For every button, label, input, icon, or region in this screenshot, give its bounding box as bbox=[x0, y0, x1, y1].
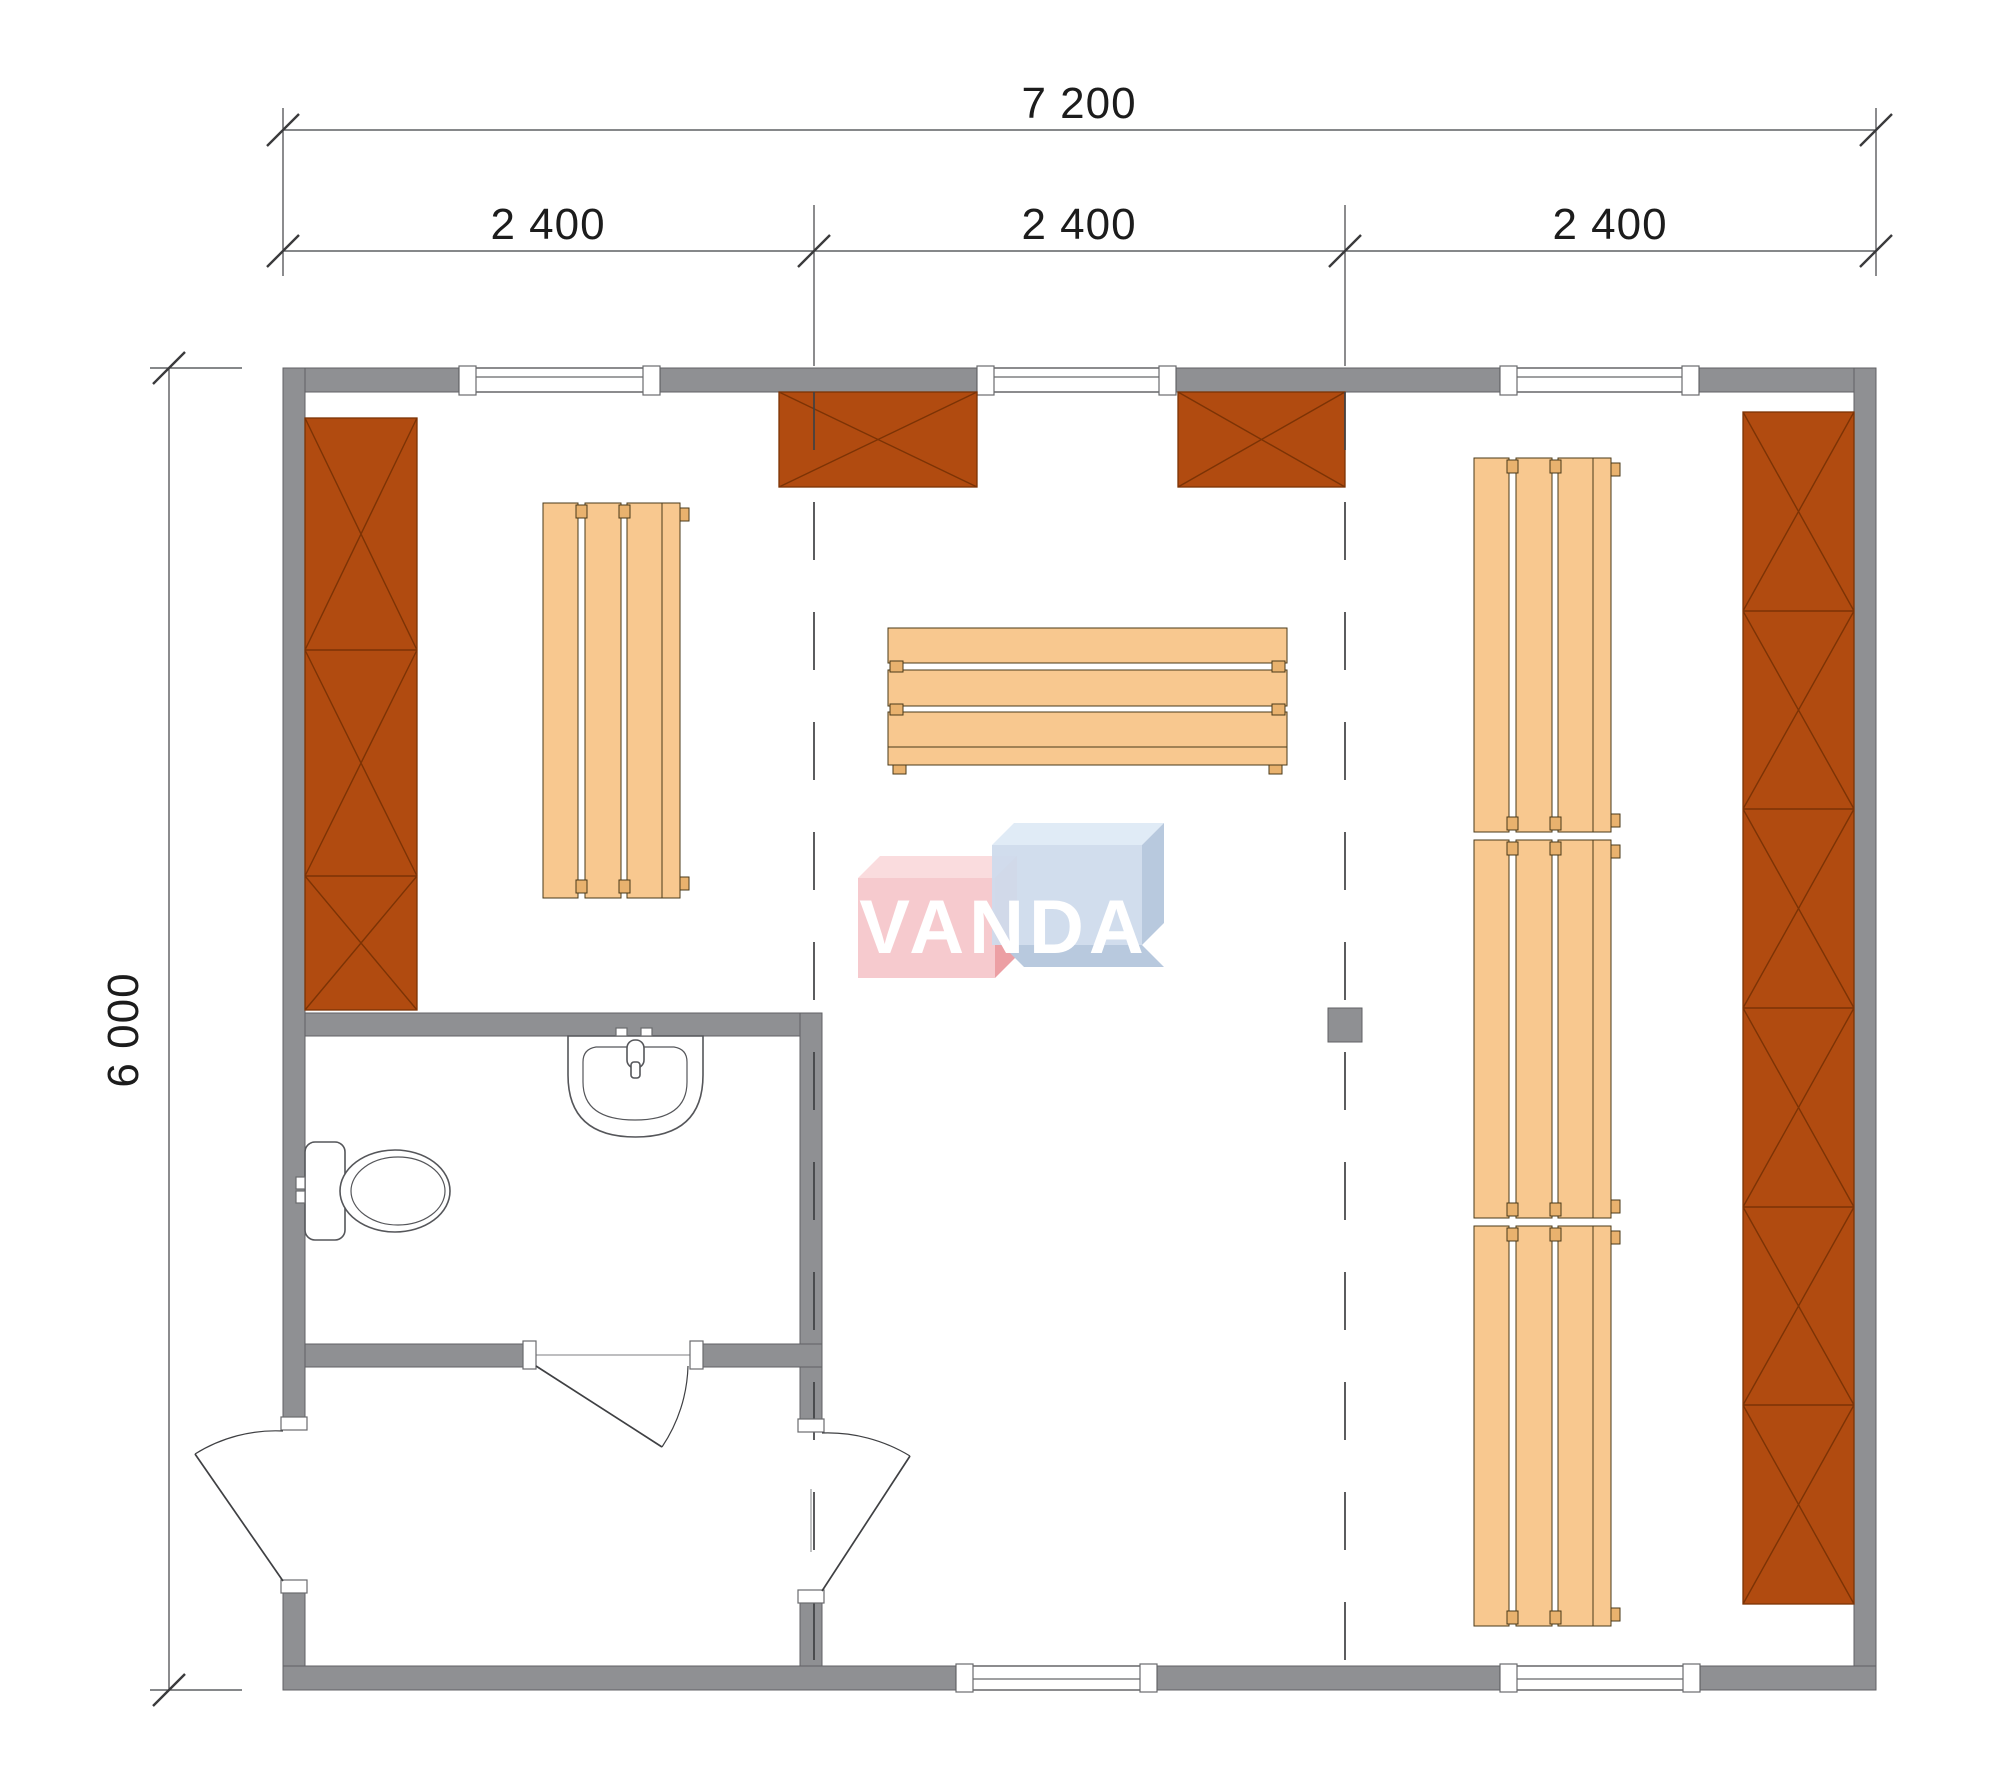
logo-wordmark: VANDA bbox=[859, 885, 1149, 970]
exterior-wall-top bbox=[660, 368, 977, 392]
exterior-wall-bottom bbox=[283, 1666, 956, 1690]
window-bottom-1 bbox=[956, 1664, 1157, 1692]
bench-right-segment-3 bbox=[1474, 1226, 1620, 1626]
exterior-wall-top bbox=[1176, 368, 1500, 392]
module-grid bbox=[814, 392, 1345, 1666]
bathroom-wall-bottom bbox=[305, 1344, 523, 1367]
door-bathroom bbox=[523, 1341, 703, 1447]
door-leaf bbox=[536, 1366, 662, 1447]
exterior-wall-top bbox=[283, 368, 459, 392]
bench-right-segment-2 bbox=[1474, 840, 1620, 1218]
dim-module-label-3: 2 400 bbox=[1552, 200, 1667, 249]
sink bbox=[568, 1028, 703, 1137]
wall-cabinet-left bbox=[305, 418, 417, 1010]
exterior-wall-top bbox=[1699, 368, 1876, 392]
dim-module-label-1: 2 400 bbox=[490, 200, 605, 249]
door-leaf bbox=[195, 1454, 283, 1581]
bathroom-fixtures bbox=[296, 1028, 703, 1240]
overhead-cabinet-1 bbox=[779, 392, 977, 487]
bathroom-wall-right bbox=[800, 1013, 822, 1432]
dim-total-width-label: 7 200 bbox=[1021, 79, 1136, 128]
overhead-cabinet-2 bbox=[1178, 392, 1345, 487]
dim-module-label-2: 2 400 bbox=[1021, 200, 1136, 249]
door-entrance bbox=[195, 1417, 307, 1593]
column-marker bbox=[1328, 1008, 1362, 1042]
bench-left bbox=[543, 503, 689, 898]
exterior-wall-left bbox=[283, 368, 305, 1430]
bathroom-walls bbox=[305, 1013, 822, 1666]
exterior-wall-right bbox=[1854, 368, 1876, 1690]
door-swing-arc bbox=[662, 1366, 688, 1447]
door-swing-arc bbox=[822, 1433, 910, 1456]
exterior-wall-bottom bbox=[1157, 1666, 1500, 1690]
bench-center bbox=[888, 628, 1287, 774]
bench-right-segment-1 bbox=[1474, 458, 1620, 832]
bathroom-wall-bottom bbox=[703, 1344, 822, 1367]
window-top-2 bbox=[977, 366, 1176, 395]
exterior-wall-bottom bbox=[1700, 1666, 1876, 1690]
toilet bbox=[296, 1142, 450, 1240]
window-bottom-2 bbox=[1500, 1664, 1700, 1692]
benches bbox=[543, 458, 1620, 1626]
floor-plan-drawing: 7 200 2 400 2 400 2 400 6 000 bbox=[0, 0, 2000, 1786]
window-top-1 bbox=[459, 366, 660, 395]
cabinets bbox=[305, 392, 1854, 1604]
window-top-3 bbox=[1500, 366, 1699, 395]
vanda-logo: VANDA bbox=[858, 823, 1164, 978]
wall-cabinet-right bbox=[1743, 412, 1854, 1604]
bathroom-wall-top bbox=[305, 1013, 822, 1036]
dim-height-label: 6 000 bbox=[99, 972, 148, 1087]
door-leaf bbox=[822, 1456, 910, 1591]
floor-plan-canvas: 7 200 2 400 2 400 2 400 6 000 bbox=[0, 0, 2000, 1786]
door-swing-arc bbox=[195, 1431, 283, 1454]
